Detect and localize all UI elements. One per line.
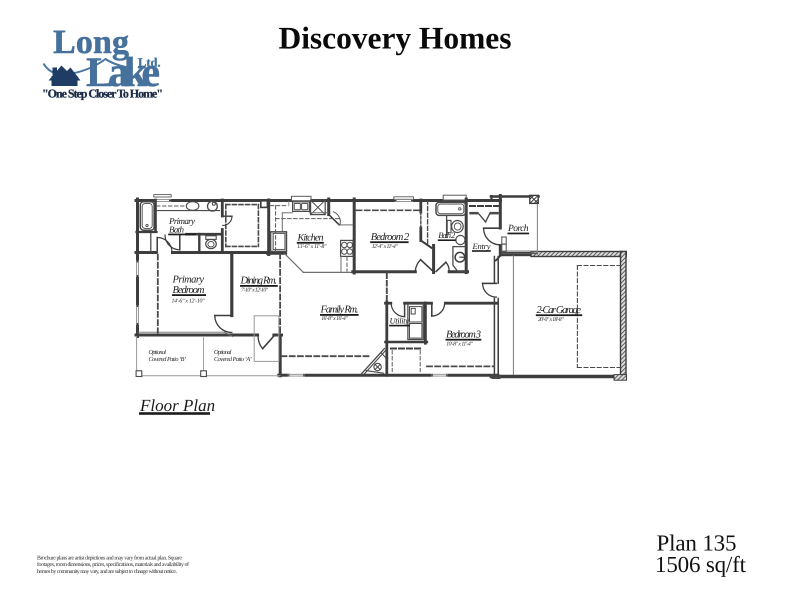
svg-text:Entry: Entry bbox=[472, 241, 491, 251]
svg-text:12′-4″ x 11′-4″: 12′-4″ x 11′-4″ bbox=[372, 244, 399, 250]
svg-text:20′-0″ x 18′-8″: 20′-0″ x 18′-8″ bbox=[538, 317, 564, 323]
svg-text:Optional: Optional bbox=[149, 349, 167, 356]
svg-text:Utility: Utility bbox=[390, 316, 410, 326]
svg-text:Discovery Homes: Discovery Homes bbox=[279, 21, 512, 56]
svg-text:Bath 2: Bath 2 bbox=[438, 230, 456, 240]
svg-text:"One Step Closer To Home": "One Step Closer To Home" bbox=[42, 86, 163, 100]
svg-text:16′-8″ x 16′-4″: 16′-8″ x 16′-4″ bbox=[321, 316, 348, 322]
svg-text:Bedroom 2: Bedroom 2 bbox=[371, 232, 410, 243]
svg-text:10′-8″ x 11′-4″: 10′-8″ x 11′-4″ bbox=[446, 342, 473, 348]
svg-text:Ltd.: Ltd. bbox=[138, 55, 161, 69]
svg-text:Optional: Optional bbox=[214, 349, 232, 356]
svg-text:Floor Plan: Floor Plan bbox=[139, 396, 215, 415]
svg-text:Bath: Bath bbox=[169, 225, 185, 235]
svg-text:Dining Rm.: Dining Rm. bbox=[240, 276, 278, 287]
svg-text:Brochure plans are artist depi: Brochure plans are artist depictions and… bbox=[37, 555, 182, 562]
svg-text:1506 sq/ft: 1506 sq/ft bbox=[655, 552, 747, 577]
svg-text:footages, room dimensions, pri: footages, room dimensions, prices, speci… bbox=[37, 561, 189, 568]
svg-text:2-Car Garage: 2-Car Garage bbox=[537, 305, 582, 316]
svg-text:Bedroom: Bedroom bbox=[173, 285, 205, 296]
svg-text:Covered Patio ‘B’: Covered Patio ‘B’ bbox=[149, 356, 187, 363]
svg-text:Kitchen: Kitchen bbox=[297, 233, 324, 244]
svg-text:13′-6″ x 11′-8″: 13′-6″ x 11′-8″ bbox=[297, 244, 327, 250]
svg-text:14′-6″ x 12′-10″: 14′-6″ x 12′-10″ bbox=[172, 299, 206, 305]
svg-text:Covered Patio ‘A’: Covered Patio ‘A’ bbox=[214, 356, 252, 363]
svg-text:Bedroom 3: Bedroom 3 bbox=[446, 329, 481, 340]
svg-text:homes by community may vary, a: homes by community may vary, and are sub… bbox=[37, 568, 178, 575]
svg-text:Family Rm.: Family Rm. bbox=[320, 305, 359, 316]
svg-text:7′-10″ x 12′-10″: 7′-10″ x 12′-10″ bbox=[241, 288, 269, 294]
